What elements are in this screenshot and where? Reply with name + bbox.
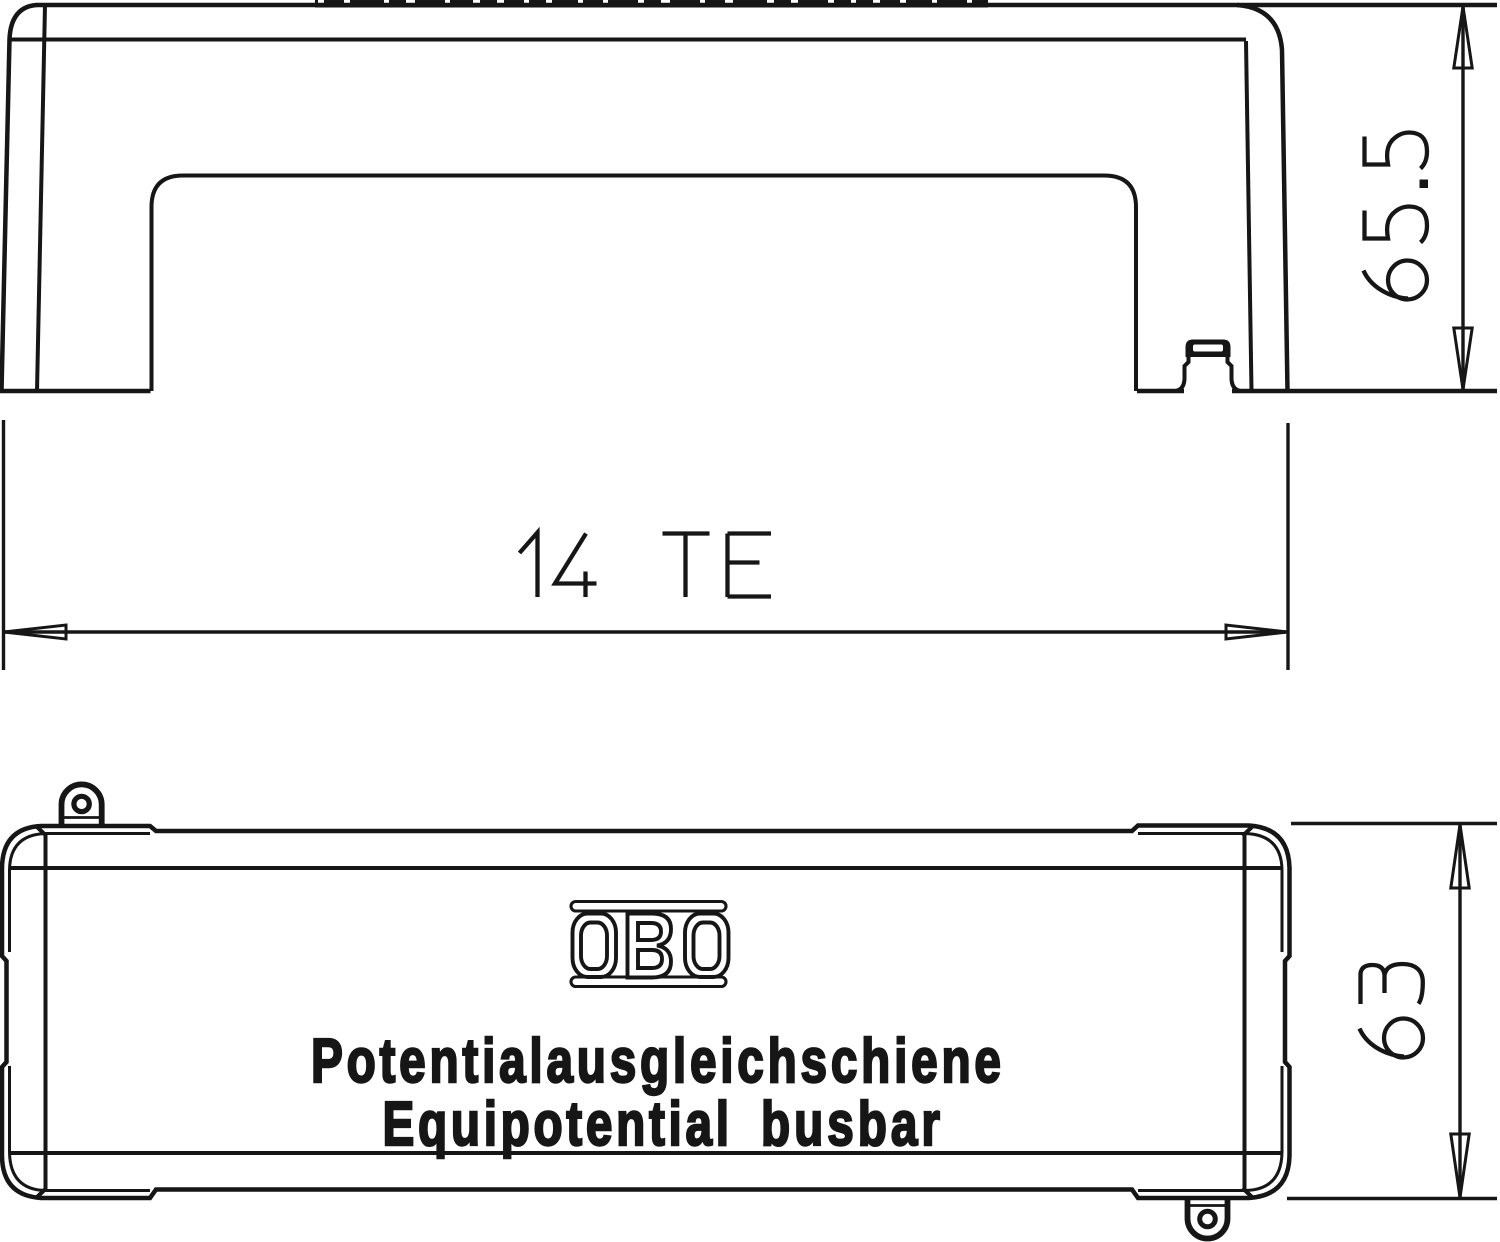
svg-text:Equipotential: Equipotential xyxy=(383,1089,730,1158)
svg-text:busbar: busbar xyxy=(761,1089,940,1158)
svg-text:Potentialausgleichschiene: Potentialausgleichschiene xyxy=(311,1026,1001,1095)
